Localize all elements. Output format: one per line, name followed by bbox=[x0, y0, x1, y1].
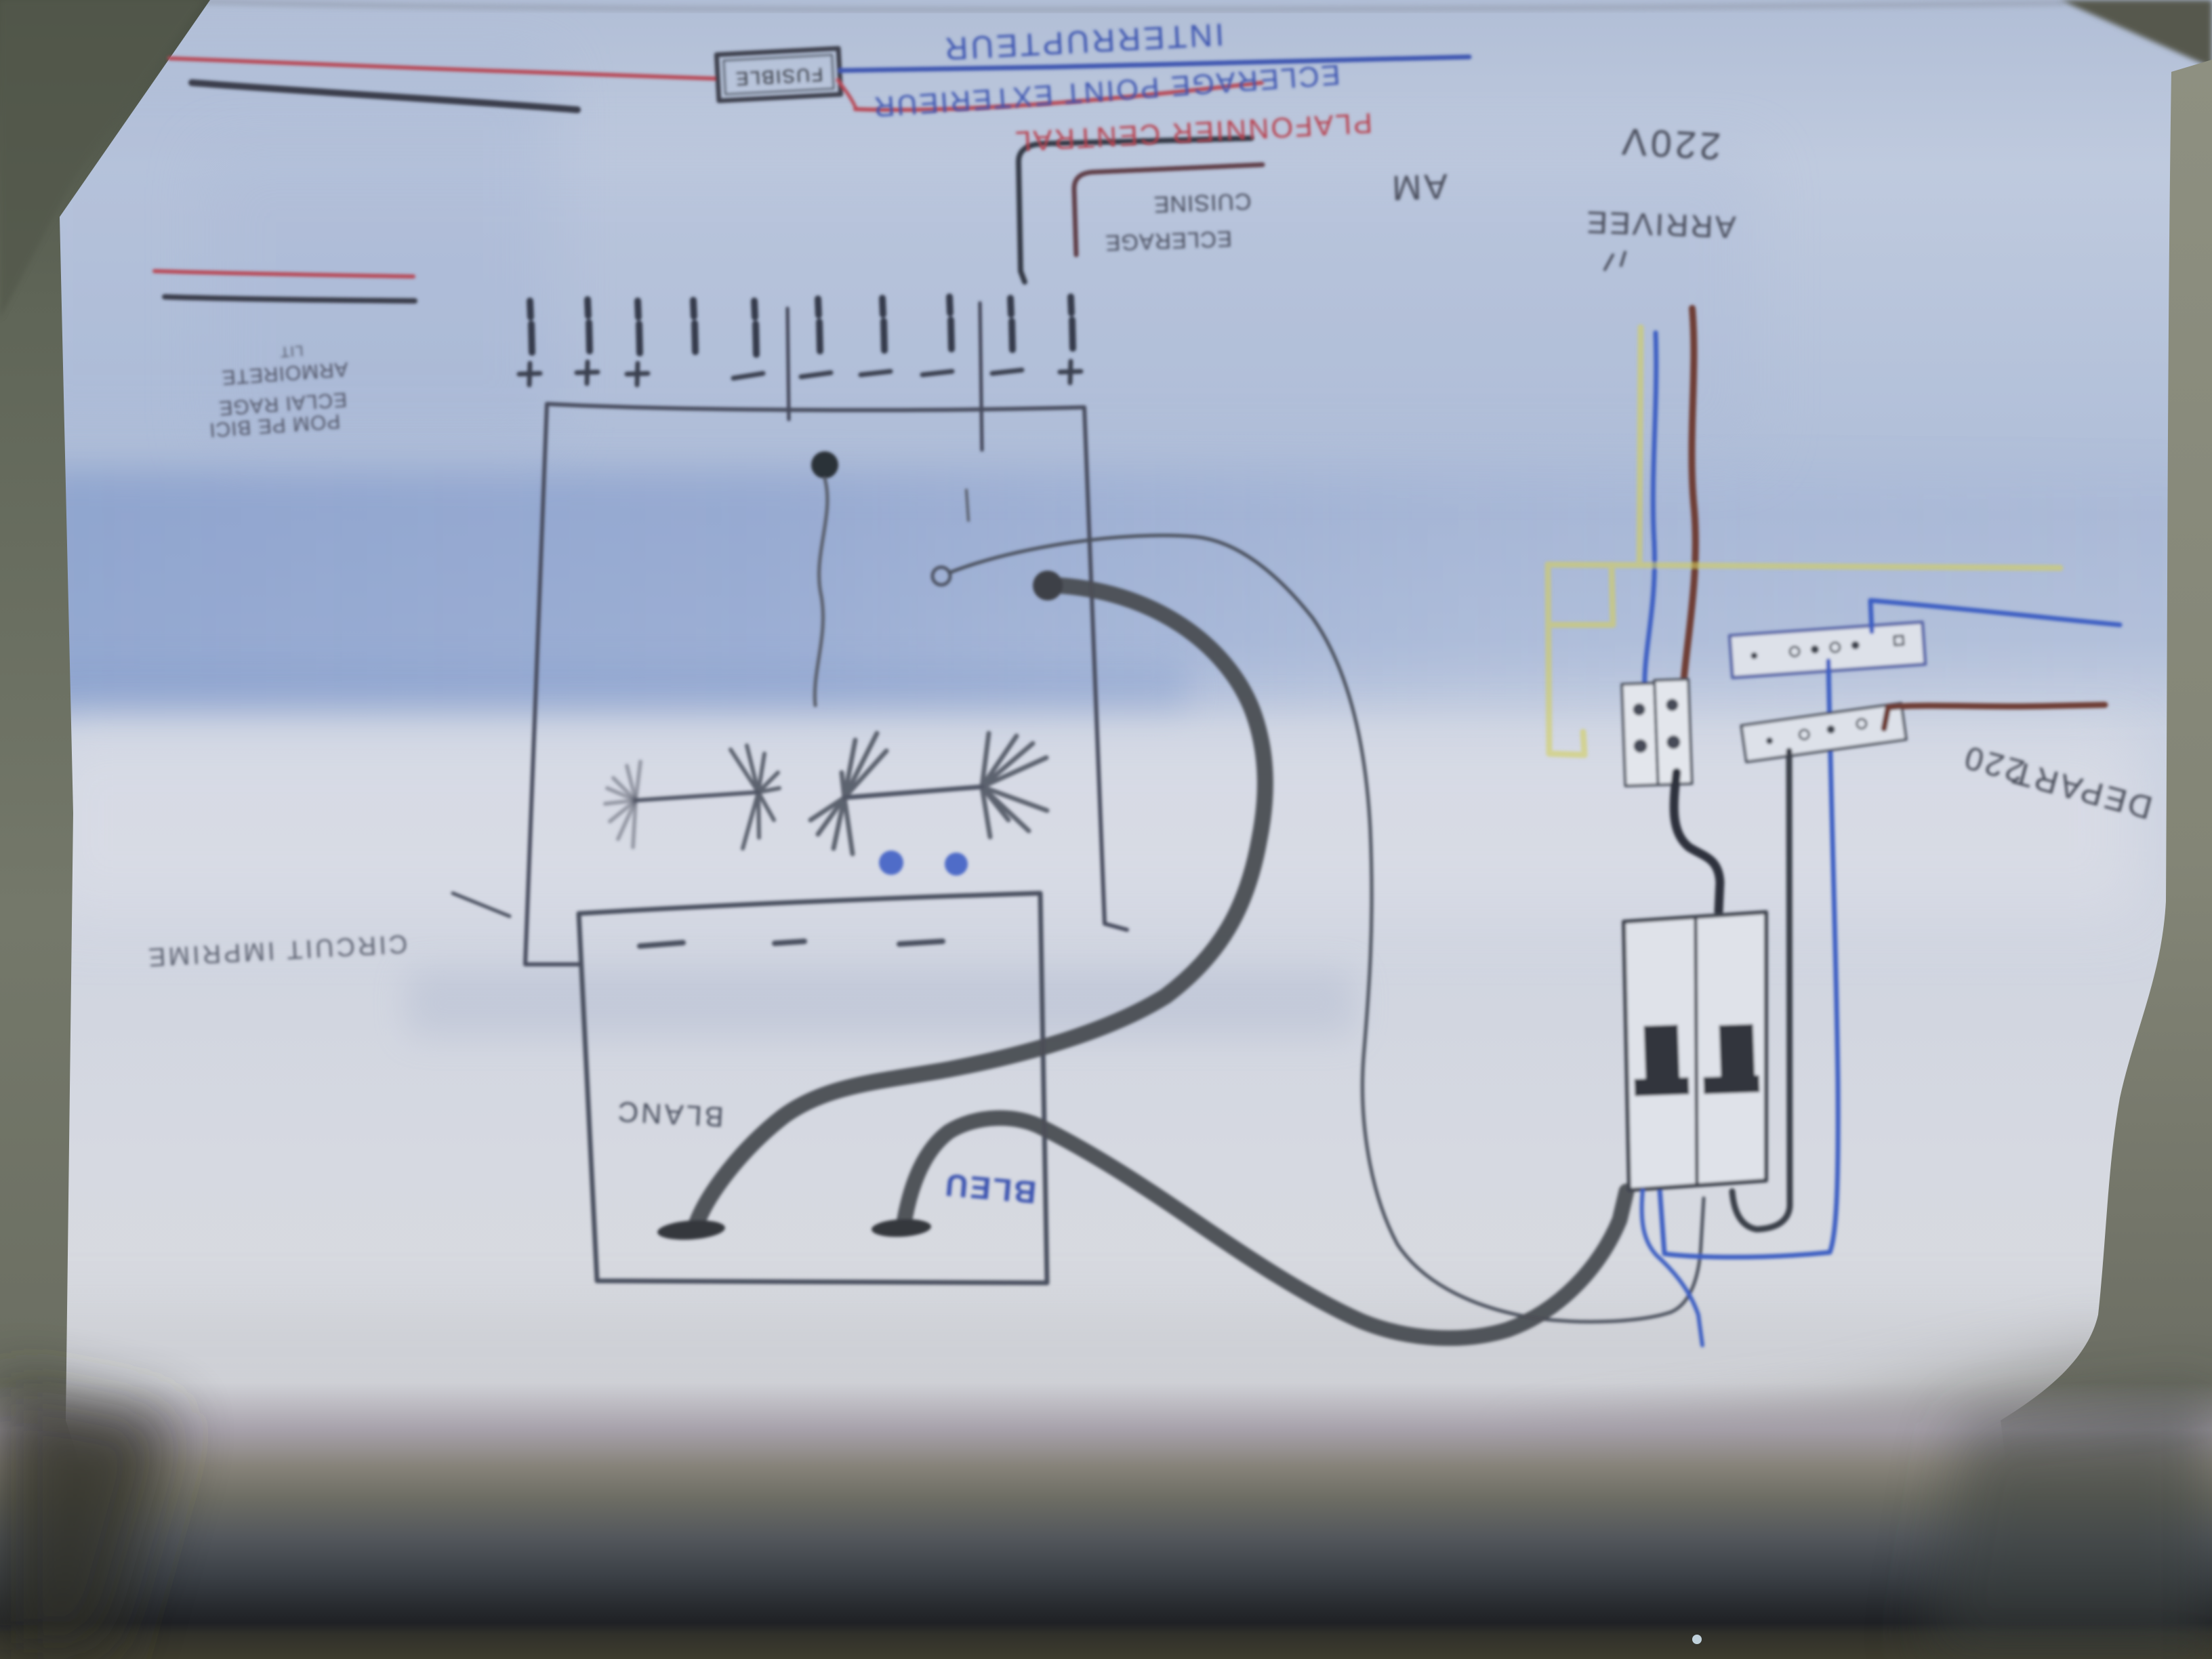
svg-text:AM: AM bbox=[1389, 166, 1448, 207]
svg-text:BLANC: BLANC bbox=[615, 1096, 724, 1133]
svg-text:CUISINE: CUISINE bbox=[1153, 188, 1252, 217]
svg-text:LIT: LIT bbox=[279, 342, 304, 361]
svg-text:ARRIVEE: ARRIVEE bbox=[1584, 205, 1737, 245]
svg-text:220V: 220V bbox=[1618, 120, 1722, 168]
svg-text:ECLERAGE: ECLERAGE bbox=[1105, 226, 1233, 256]
